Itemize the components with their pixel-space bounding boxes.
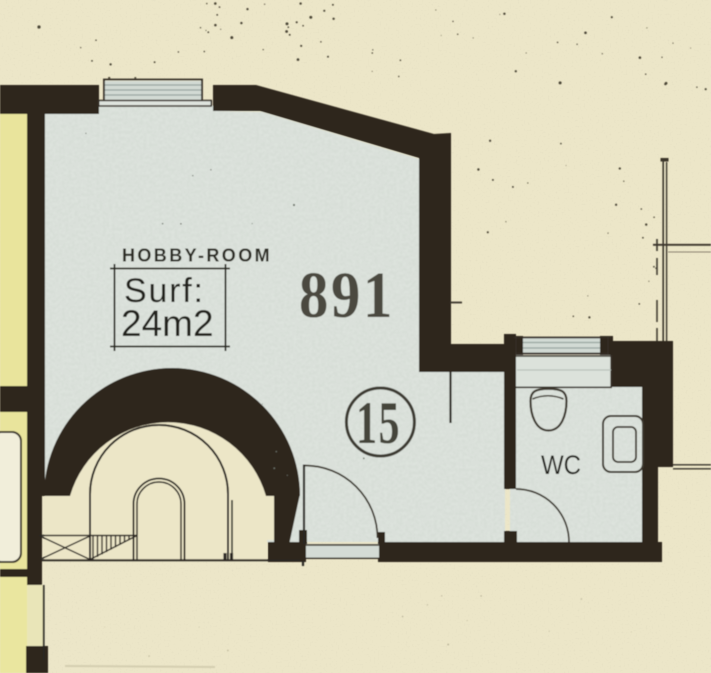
svg-text:HOBBY-ROOM: HOBBY-ROOM xyxy=(122,246,272,266)
svg-text:WC: WC xyxy=(541,450,581,480)
svg-text:891: 891 xyxy=(299,259,395,332)
svg-text:24m2: 24m2 xyxy=(121,303,214,344)
svg-text:15: 15 xyxy=(356,390,401,456)
